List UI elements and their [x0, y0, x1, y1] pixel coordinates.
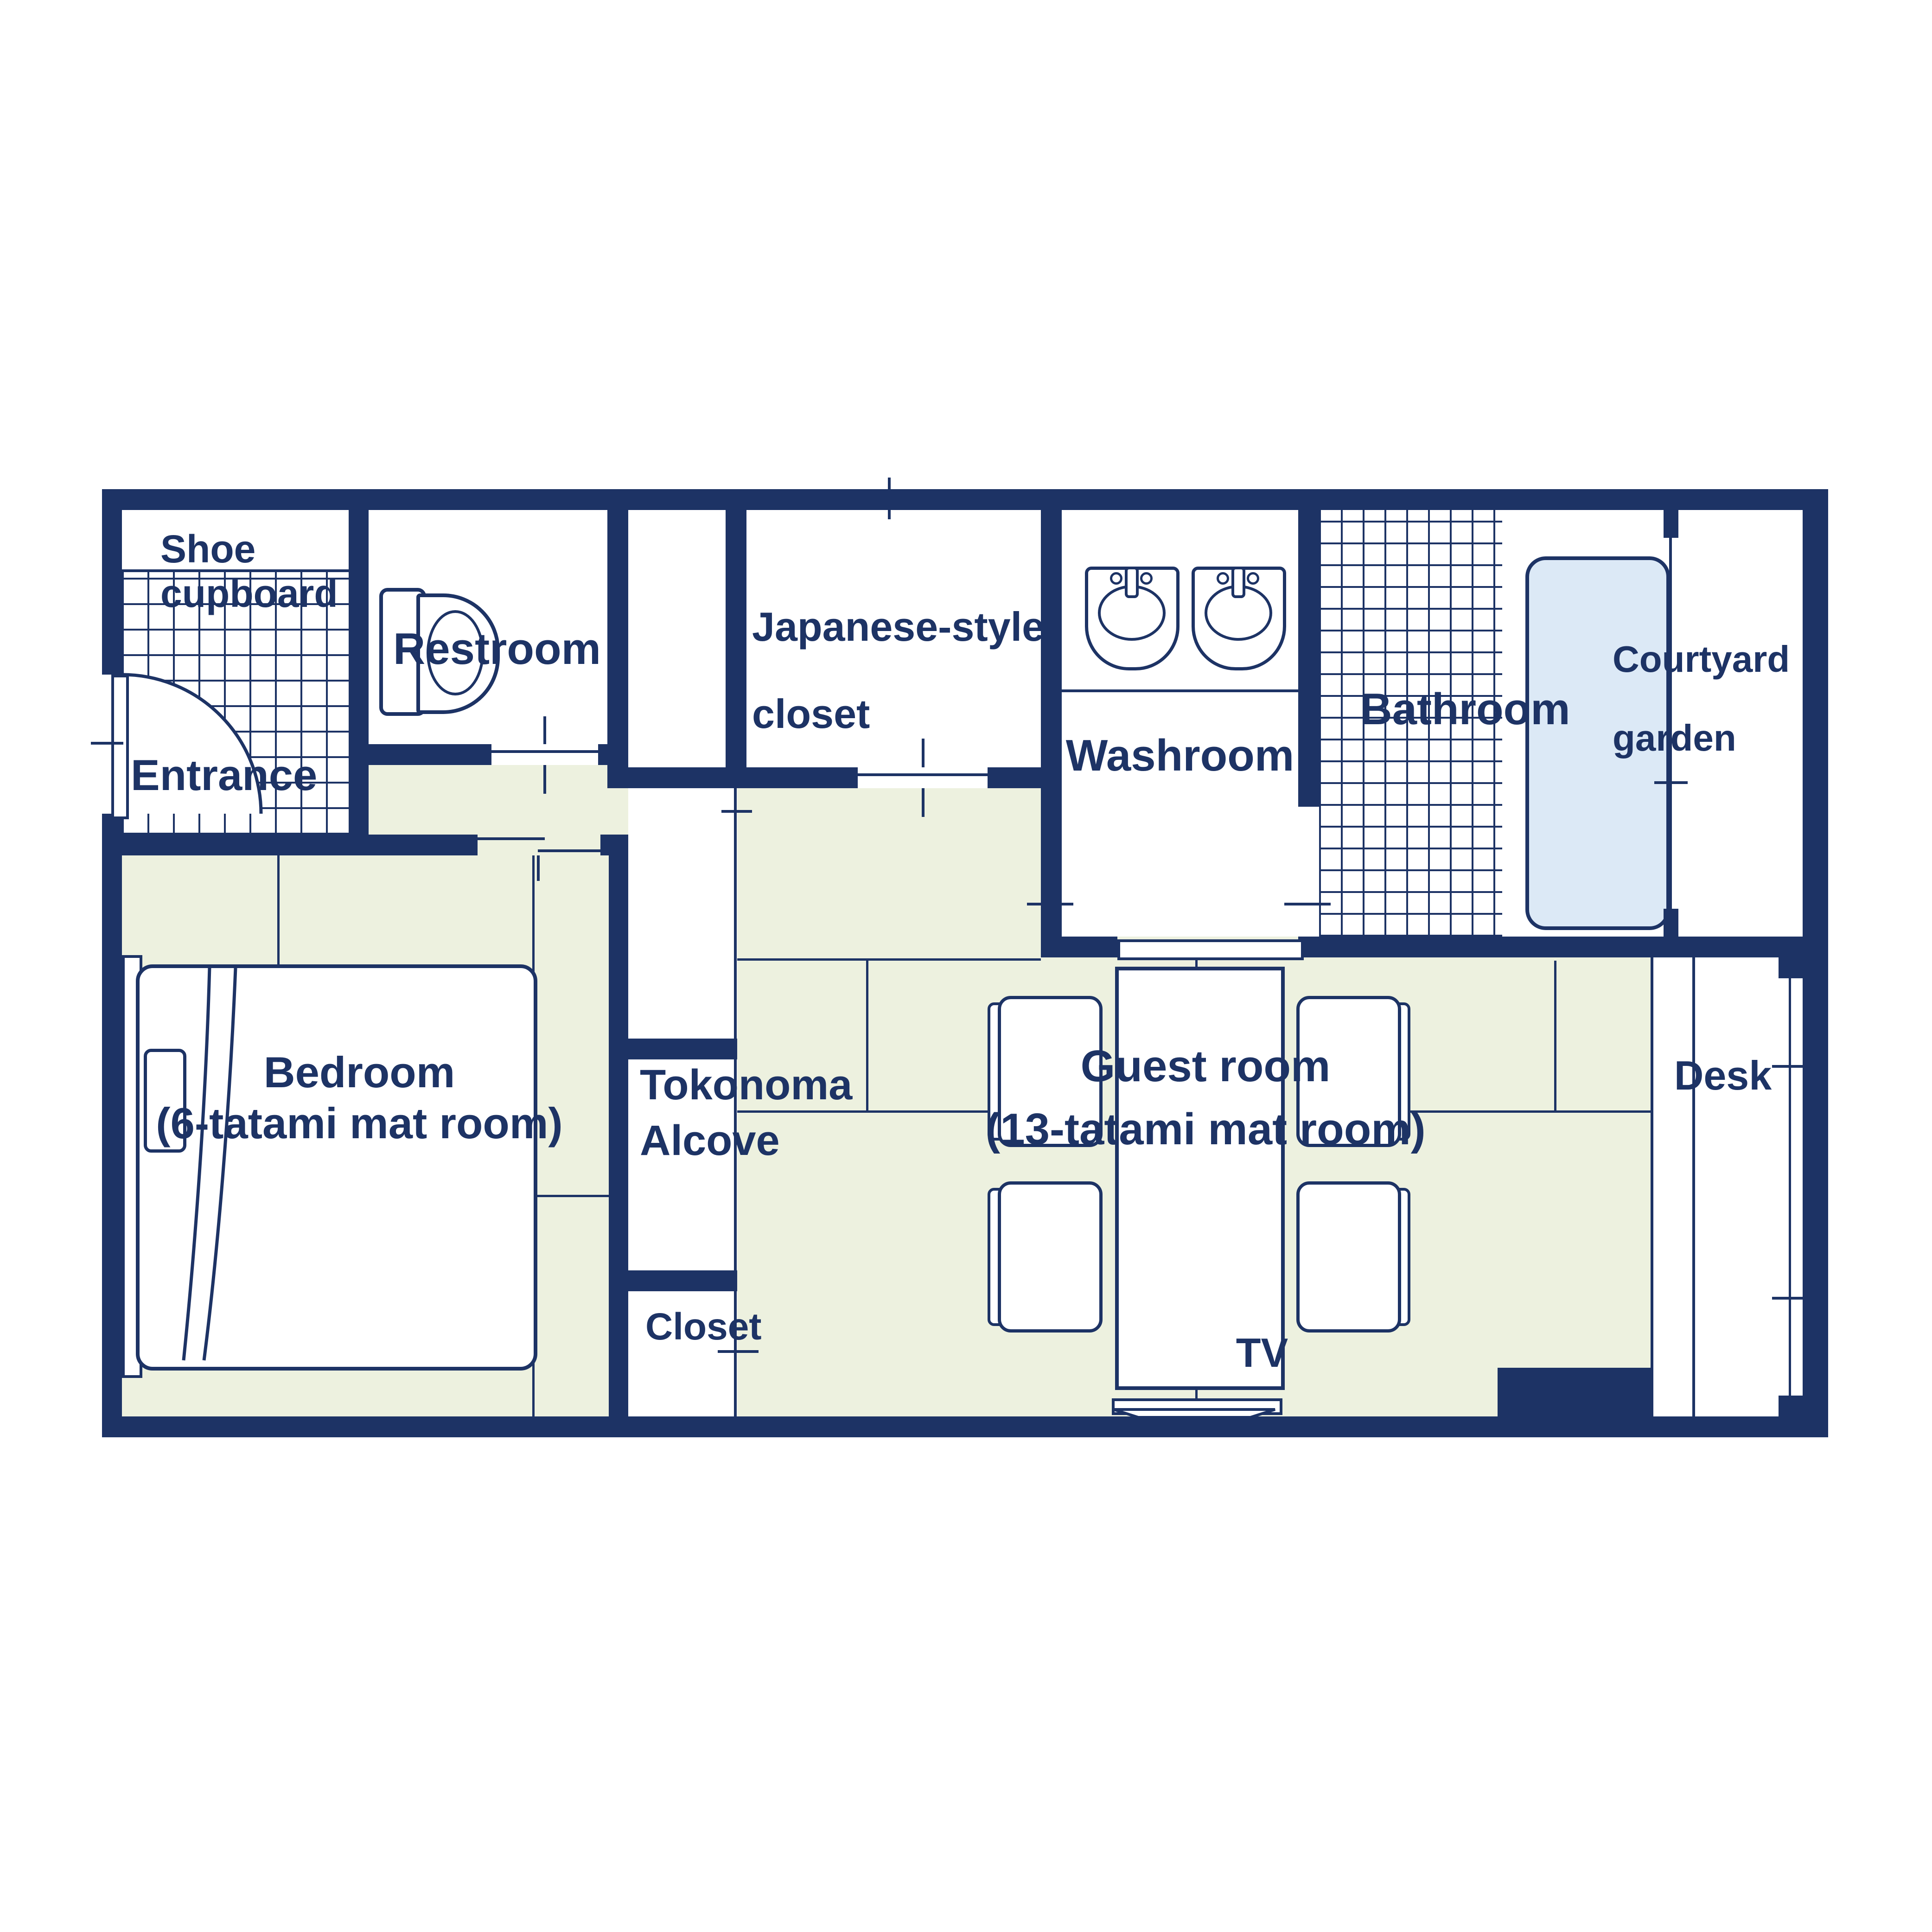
japanese-closet-label-line1: Japanese-style: [752, 583, 1045, 670]
tick-closet-door-below: [922, 788, 925, 817]
courtyard-label-line2: garden: [1613, 699, 1790, 778]
tokonoma-label-line1: Tokonoma: [640, 1057, 852, 1113]
bathroom-label: Bathroom: [1360, 684, 1570, 735]
guest-room-label: Guest room (13-tatami mat room): [985, 1035, 1426, 1161]
tick-restroom-door-above: [543, 716, 546, 744]
guest-room-label-line1: Guest room: [985, 1035, 1426, 1098]
entrance-door-swing: [0, 0, 1932, 1932]
tick-washroom-right: [1284, 903, 1331, 905]
tick-washroom-left: [1027, 903, 1073, 905]
tick-glass-line: [1654, 781, 1688, 784]
tokonoma-label: Tokonoma Alcove: [640, 1057, 852, 1168]
tick-hallway-line: [721, 810, 752, 813]
shoe-cupboard-label-line1: Shoe: [160, 527, 338, 571]
desk-label: Desk: [1674, 1052, 1772, 1099]
tick-restroom-door-below: [543, 765, 546, 794]
japanese-closet-label: Japanese-style closet: [752, 583, 1045, 758]
bedroom-label: Bedroom (6-tatami mat room): [156, 1047, 562, 1149]
bedroom-label-line1: Bedroom: [156, 1047, 562, 1098]
tick-bedroom-door: [537, 855, 540, 881]
washroom-label: Washroom: [1066, 730, 1294, 781]
courtyard-label-line1: Courtyard: [1613, 620, 1790, 699]
tick-engawa-1: [1772, 1065, 1808, 1068]
tick-top-wall-closet: [888, 478, 891, 519]
japanese-closet-label-line2: closet: [752, 670, 1045, 758]
bedroom-label-line2: (6-tatami mat room): [156, 1098, 562, 1149]
shoe-cupboard-label: Shoe cupboard: [160, 527, 338, 616]
entrance-door-panel: [111, 675, 129, 819]
closet-label: Closet: [645, 1305, 762, 1349]
tick-entrance-wall: [91, 742, 123, 745]
restroom-label: Restroom: [393, 624, 601, 675]
floor-plan: Shoe cupboard Entrance Restroom Japanese…: [0, 0, 1932, 1932]
tv-label: TV: [1236, 1329, 1288, 1377]
tokonoma-label-line2: Alcove: [640, 1113, 852, 1168]
entrance-label: Entrance: [131, 750, 317, 800]
shoe-cupboard-label-line2: cupboard: [160, 571, 338, 616]
guest-room-label-line2: (13-tatami mat room): [985, 1098, 1426, 1161]
tick-closet-label: [718, 1350, 759, 1353]
courtyard-label: Courtyard garden: [1613, 620, 1790, 778]
tick-engawa-2: [1772, 1297, 1808, 1300]
